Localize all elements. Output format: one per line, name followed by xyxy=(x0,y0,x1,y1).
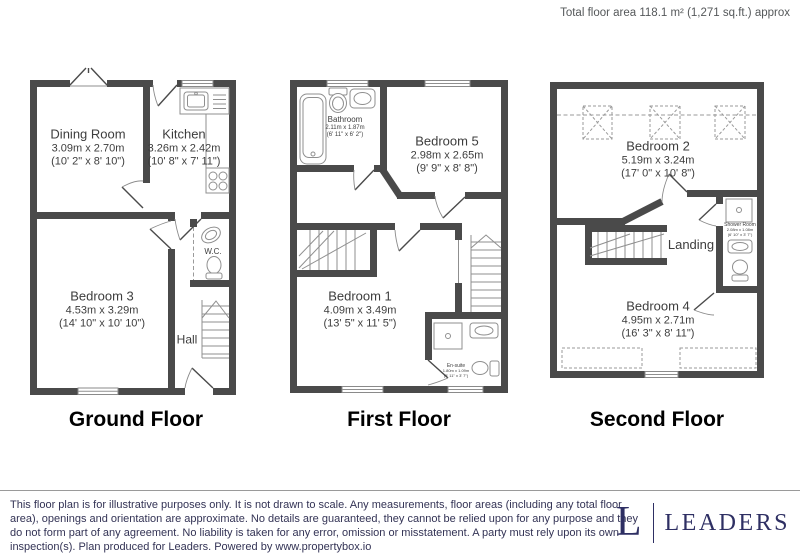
leaders-logo-letter: L xyxy=(616,504,642,542)
room-label-bedroom5: Bedroom 5 2.98m x 2.65m (9' 9" x 8' 8") xyxy=(411,134,484,177)
room-label-dining: Dining Room 3.09m x 2.70m (10' 2" x 8' 1… xyxy=(50,127,125,170)
first-floor-plan: Bathroom 2.11m x 1.87m (6' 11" x 6' 2") … xyxy=(290,80,510,393)
room-label-kitchen: Kitchen 3.26m x 2.42m (10' 8" x 7' 11") xyxy=(148,127,221,170)
first-floor-drawing xyxy=(290,80,510,393)
wc-toilet-icon xyxy=(206,257,222,280)
toilet-icon xyxy=(732,260,748,281)
shower-icon xyxy=(434,323,462,349)
bath-icon xyxy=(300,94,326,164)
room-label-wc: W.C. xyxy=(204,247,221,257)
total-floor-area: Total floor area 118.1 m² (1,271 sq.ft.)… xyxy=(560,7,790,19)
room-label-bedroom2: Bedroom 2 5.19m x 3.24m (17' 0" x 10' 8"… xyxy=(621,139,695,182)
toilet-icon xyxy=(329,88,347,113)
room-label-landing: Landing xyxy=(668,237,714,253)
room-label-bedroom4: Bedroom 4 4.95m x 2.71m (16' 3" x 8' 11"… xyxy=(622,299,695,342)
leaders-logo-divider xyxy=(653,503,654,543)
french-doors xyxy=(70,68,107,88)
shower-icon xyxy=(726,199,752,222)
room-label-bedroom3: Bedroom 3 4.53m x 3.29m (14' 10" x 10' 1… xyxy=(59,289,145,332)
leaders-logo: L LEADERS xyxy=(616,503,790,543)
first-floor-title: First Floor xyxy=(347,408,451,432)
basin-icon xyxy=(470,323,498,338)
room-label-shower-room: Shower Room 2.08m x 1.08m (6' 10" x 3' 7… xyxy=(724,222,756,238)
floorplan-page: Total floor area 118.1 m² (1,271 sq.ft.)… xyxy=(0,0,800,560)
hob-icon xyxy=(206,168,229,193)
second-floor-plan: Bedroom 2 5.19m x 3.24m (17' 0" x 10' 8"… xyxy=(550,82,766,380)
basin-icon xyxy=(728,240,752,253)
room-label-bathroom: Bathroom 2.11m x 1.87m (6' 11" x 6' 2") xyxy=(325,115,364,139)
ground-floor-title: Ground Floor xyxy=(69,408,203,432)
window xyxy=(78,388,118,395)
leaders-logo-name: LEADERS xyxy=(665,510,791,537)
window xyxy=(182,81,213,87)
room-label-bedroom1: Bedroom 1 4.09m x 3.49m (13' 5" x 11' 5"… xyxy=(324,289,397,332)
ground-floor-drawing xyxy=(30,64,238,396)
disclaimer-text: This floor plan is for illustrative purp… xyxy=(10,498,650,554)
room-label-ensuite: En-suite 1.80m x 1.09m (5' 11" x 3' 7") xyxy=(443,363,469,379)
window xyxy=(645,372,678,378)
basin-icon xyxy=(350,89,375,108)
ground-floor-plan: Dining Room 3.09m x 2.70m (10' 2" x 8' 1… xyxy=(30,64,238,396)
second-floor-title: Second Floor xyxy=(590,408,724,432)
footer: This floor plan is for illustrative purp… xyxy=(0,490,800,560)
room-label-hall: Hall xyxy=(177,333,198,348)
kitchen-sink-icon xyxy=(180,88,229,114)
